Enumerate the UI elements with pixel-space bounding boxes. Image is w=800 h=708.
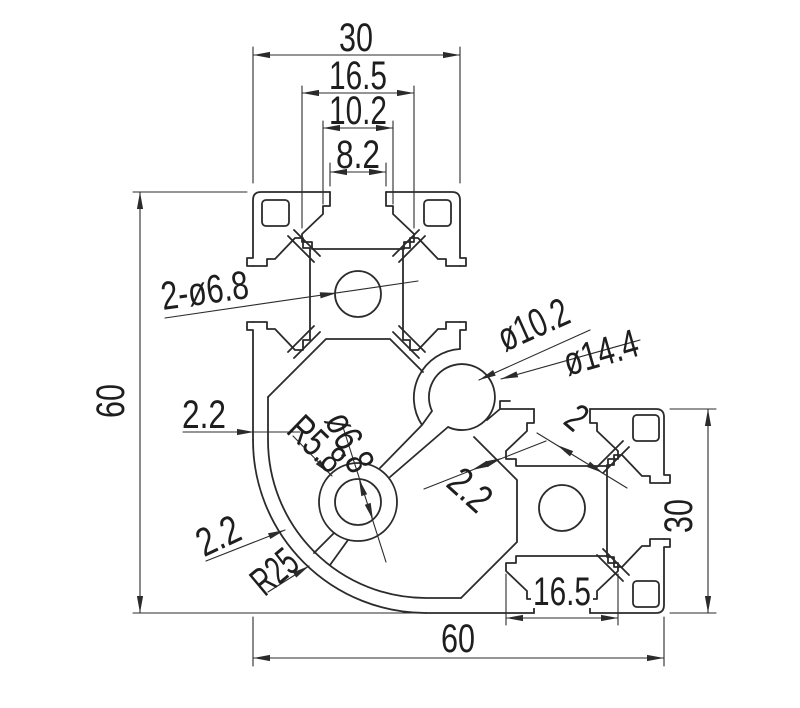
arrow — [302, 90, 319, 96]
arrow — [601, 615, 618, 621]
arrow — [397, 90, 414, 96]
cad-canvas: 30 16.5 10.2 8.2 60 2-ø6.8 ø10.2 ø14.4 2… — [0, 0, 800, 708]
dim-top-slot-throat: 10.2 — [329, 89, 387, 133]
dim-bottom-overall: 60 — [441, 617, 475, 661]
top-arm-center-hole — [335, 271, 381, 317]
arrow — [705, 596, 711, 613]
bottom-arm-corner-chamber-bottom — [633, 581, 659, 607]
dim-wall-arc: 2.2 — [189, 507, 247, 565]
arrow — [137, 192, 143, 209]
dim-bottom-slot-width: 16.5 — [533, 570, 591, 614]
arrow — [478, 370, 496, 383]
arrow — [587, 462, 605, 476]
dim-overall-height: 60 — [89, 384, 133, 418]
arrow — [500, 371, 518, 382]
bottom-arm-corner-chamber-top — [633, 415, 659, 441]
arrow — [237, 429, 254, 435]
arrow — [555, 442, 573, 456]
corner-screw-channel — [380, 349, 495, 477]
top-arm-corner-chamber-left — [262, 200, 289, 226]
arrow — [705, 409, 711, 426]
arrow — [137, 596, 143, 613]
top-arm-outline — [247, 192, 466, 440]
dim-core-holes: 2-ø6.8 — [158, 263, 251, 319]
arrow — [647, 655, 664, 661]
arrow — [253, 52, 270, 58]
drawing-sheet: 30 16.5 10.2 8.2 60 2-ø6.8 ø10.2 ø14.4 2… — [0, 0, 800, 708]
arrow — [506, 615, 523, 621]
arrow — [443, 52, 460, 58]
bottom-arm-center-hole — [539, 485, 585, 531]
profile-geometry — [247, 192, 670, 613]
dim-wall-left: 2.2 — [182, 393, 226, 437]
arrow — [253, 655, 270, 661]
corner-boss-bore — [335, 479, 381, 525]
top-arm-corner-chamber-right — [424, 200, 451, 226]
dim-top-slot-opening: 8.2 — [336, 133, 380, 177]
dim-wall-channel: 2.2 — [439, 459, 501, 521]
dim-right-overall: 30 — [657, 499, 701, 533]
dimension-labels: 30 16.5 10.2 8.2 60 2-ø6.8 ø10.2 ø14.4 2… — [89, 16, 701, 661]
bottom-arm-webs — [597, 441, 629, 581]
dim-corner-radius: R25 — [242, 540, 307, 605]
